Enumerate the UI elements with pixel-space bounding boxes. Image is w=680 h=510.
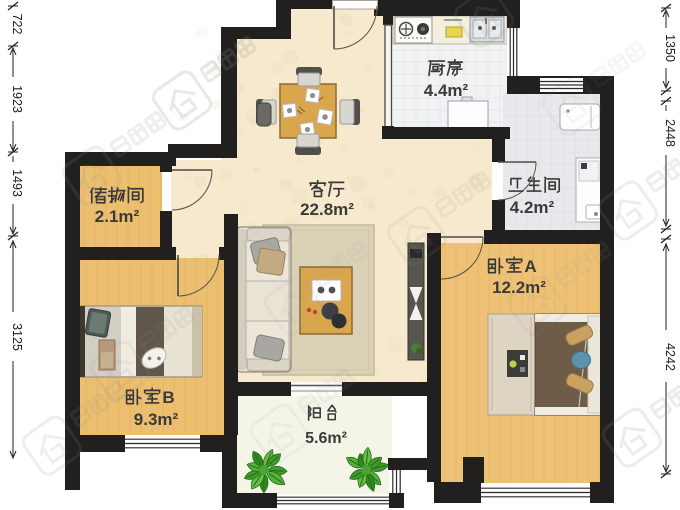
svg-text:2448: 2448	[663, 119, 677, 147]
svg-text:1350: 1350	[663, 34, 677, 62]
svg-text:3125: 3125	[10, 323, 24, 351]
svg-text:4.4m²: 4.4m²	[424, 81, 469, 100]
svg-text:22.8m²: 22.8m²	[300, 200, 354, 219]
svg-text:B: B	[162, 388, 174, 407]
svg-text:9.3m²: 9.3m²	[134, 410, 179, 429]
svg-text:1923: 1923	[10, 85, 24, 113]
svg-text:4.2m²: 4.2m²	[510, 198, 555, 217]
svg-text:4242: 4242	[663, 343, 677, 371]
svg-text:1493: 1493	[10, 169, 24, 197]
svg-text:A: A	[524, 257, 536, 276]
svg-text:12.2m²: 12.2m²	[492, 278, 546, 297]
svg-text:5.6m²: 5.6m²	[305, 430, 347, 447]
svg-text:722: 722	[10, 14, 24, 35]
svg-text:2.1m²: 2.1m²	[95, 207, 140, 226]
